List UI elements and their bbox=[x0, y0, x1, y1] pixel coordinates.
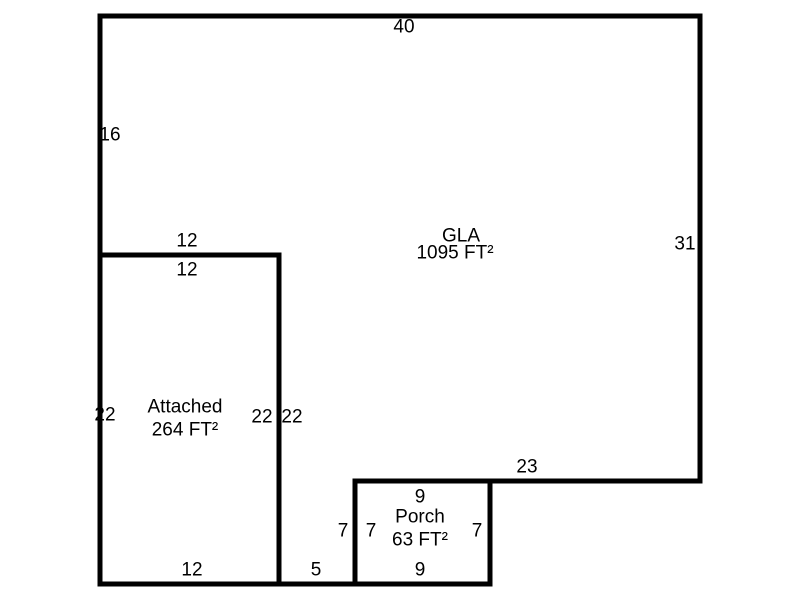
dim-attached-bottom: 12 bbox=[181, 561, 202, 580]
dim-attached-top: 12 bbox=[176, 261, 197, 280]
dim-porch-bottom: 9 bbox=[415, 561, 426, 580]
room-porch-area: 63 FT² bbox=[392, 531, 448, 550]
dim-gla-strip-bottom: 5 bbox=[311, 561, 322, 580]
room-porch-name: Porch bbox=[395, 508, 445, 527]
dim-left-height: 16 bbox=[99, 126, 120, 145]
dim-porch-right: 7 bbox=[472, 522, 483, 541]
dim-porch-top: 9 bbox=[415, 488, 426, 507]
outer-boundary-line bbox=[100, 16, 700, 584]
room-attached-area: 264 FT² bbox=[152, 421, 219, 440]
dim-gla-bottom: 23 bbox=[516, 458, 537, 477]
dim-attached-right: 22 bbox=[251, 408, 272, 427]
dim-right-height: 31 bbox=[674, 235, 695, 254]
dim-porch-left: 7 bbox=[366, 522, 377, 541]
dim-top-width: 40 bbox=[393, 18, 414, 37]
dim-gla-lower-left: 22 bbox=[281, 408, 302, 427]
floorplan-sketch: 40 16 31 23 12 12 22 22 22 12 5 7 7 7 9 … bbox=[0, 0, 800, 600]
dim-gla-attached-top: 12 bbox=[176, 232, 197, 251]
dim-gla-porch-left: 7 bbox=[338, 522, 349, 541]
room-attached-name: Attached bbox=[148, 398, 223, 417]
dim-attached-left: 22 bbox=[94, 406, 115, 425]
room-gla-area: 1095 FT² bbox=[416, 244, 493, 263]
